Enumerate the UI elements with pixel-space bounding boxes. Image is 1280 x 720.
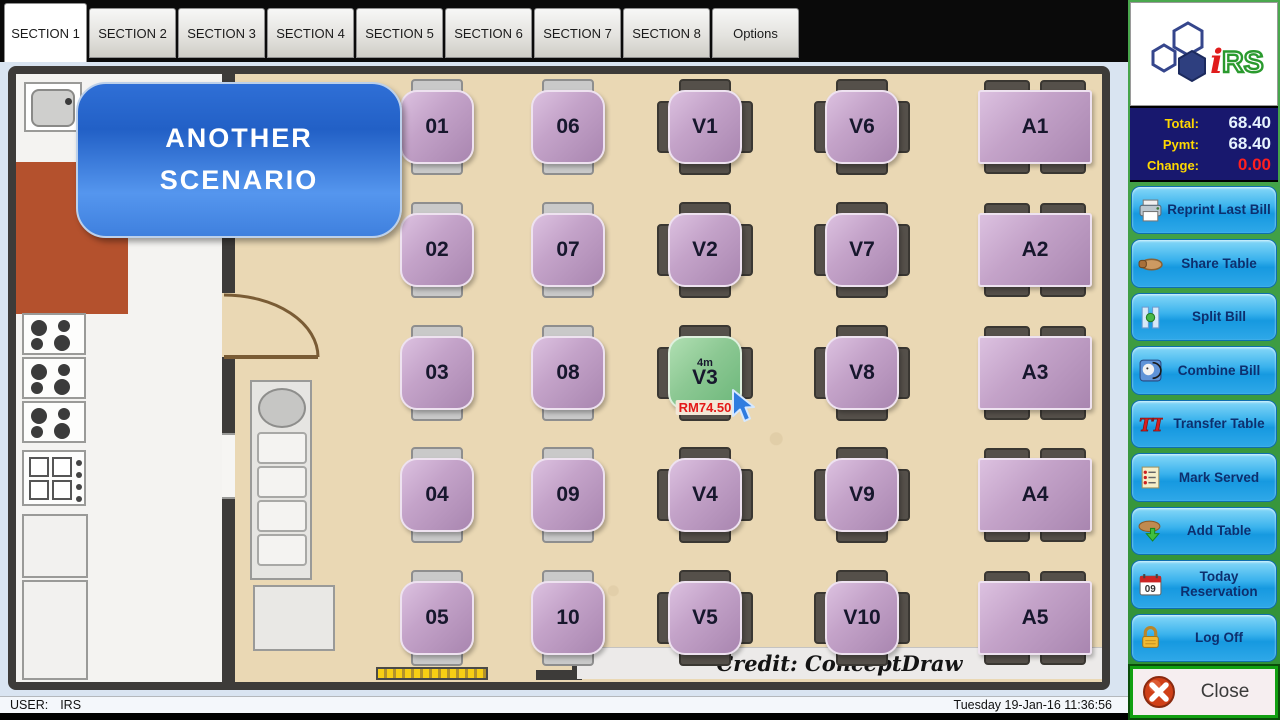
add-table-button[interactable]: Add Table <box>1131 507 1277 555</box>
share-table-button[interactable]: Share Table <box>1131 239 1277 287</box>
table-label: V6 <box>849 115 875 139</box>
table-04[interactable]: 04 <box>400 458 474 532</box>
checklist-icon <box>1137 464 1163 490</box>
table-surface: 05 <box>400 581 474 655</box>
table-surface: V2 <box>668 213 742 287</box>
table-A5[interactable]: A5 <box>978 581 1092 655</box>
table-surface: V4 <box>668 458 742 532</box>
scenario-callout: ANOTHER SCENARIO <box>76 82 402 238</box>
table-V5[interactable]: V5 <box>668 581 742 655</box>
table-V4[interactable]: V4 <box>668 458 742 532</box>
table-label: A1 <box>1022 115 1049 139</box>
table-label: 07 <box>556 238 579 262</box>
share-table-label: Share Table <box>1167 256 1271 272</box>
fridge <box>22 580 88 680</box>
pymt-label: Pymt: <box>1137 137 1199 152</box>
log-off-button[interactable]: Log Off <box>1131 614 1277 662</box>
door-opening <box>222 433 235 499</box>
stove <box>22 401 86 443</box>
table-V1[interactable]: V1 <box>668 90 742 164</box>
stove <box>22 313 86 355</box>
table-03[interactable]: 03 <box>400 336 474 410</box>
table-label: V8 <box>849 361 875 385</box>
irs-logo: i RS <box>1130 2 1278 106</box>
table-label: A4 <box>1022 483 1049 507</box>
split-bill-button[interactable]: Split Bill <box>1131 293 1277 341</box>
table-surface: 08 <box>531 336 605 410</box>
tab-section-1[interactable]: SECTION 1 <box>4 3 87 62</box>
app-window: SECTION 1SECTION 2SECTION 3SECTION 4SECT… <box>0 0 1280 720</box>
table-V10[interactable]: V10 <box>825 581 899 655</box>
table-surface: 03 <box>400 336 474 410</box>
add-table-label: Add Table <box>1167 523 1271 539</box>
tab-section-3[interactable]: SECTION 3 <box>178 8 265 58</box>
table-V9[interactable]: V9 <box>825 458 899 532</box>
sidebar: i RS Total: 68.40 Pymt: 68.40 Change: 0.… <box>1128 0 1280 720</box>
table-label: 02 <box>425 238 448 262</box>
reprint-last-bill-label: Reprint Last Bill <box>1167 202 1271 218</box>
user-label: USER: <box>10 698 48 712</box>
table-07[interactable]: 07 <box>531 213 605 287</box>
tab-section-4[interactable]: SECTION 4 <box>267 8 354 58</box>
table-label: V1 <box>692 115 718 139</box>
combine-icon <box>1137 358 1163 384</box>
transfer-table-label: Transfer Table <box>1167 416 1271 432</box>
table-surface: A3 <box>978 336 1092 410</box>
table-label: 05 <box>425 606 448 630</box>
table-amount: RM74.50 <box>676 400 735 415</box>
table-label: V2 <box>692 238 718 262</box>
close-label: Close <box>1183 681 1267 703</box>
add-table-icon <box>1137 518 1163 544</box>
callout-line2: SCENARIO <box>160 160 319 202</box>
table-A2[interactable]: A2 <box>978 213 1092 287</box>
table-10[interactable]: 10 <box>531 581 605 655</box>
transfer-icon: TT <box>1137 411 1163 437</box>
table-surface: 04 <box>400 458 474 532</box>
table-label: V5 <box>692 606 718 630</box>
table-V7[interactable]: V7 <box>825 213 899 287</box>
total-value: 68.40 <box>1199 113 1271 133</box>
table-label: A5 <box>1022 606 1049 630</box>
table-09[interactable]: 09 <box>531 458 605 532</box>
service-counter <box>253 585 335 651</box>
user-value: IRS <box>60 698 81 712</box>
table-surface: V6 <box>825 90 899 164</box>
mark-served-button[interactable]: Mark Served <box>1131 453 1277 501</box>
counter-stove <box>22 450 86 506</box>
stove <box>22 357 86 399</box>
table-surface: V10 <box>825 581 899 655</box>
printer-icon <box>1137 197 1163 223</box>
lock-icon <box>1137 625 1163 651</box>
total-label: Total: <box>1137 116 1199 131</box>
table-label: A3 <box>1022 361 1049 385</box>
table-label: 04 <box>425 483 448 507</box>
table-surface: 02 <box>400 213 474 287</box>
floor-plan: 01020304050607080910V1V24mV3RM74.50V4V5V… <box>8 66 1110 690</box>
stairs-strip <box>376 667 488 680</box>
mark-served-label: Mark Served <box>1167 470 1271 486</box>
tab-options[interactable]: Options <box>712 8 799 58</box>
mouse-cursor <box>728 388 760 424</box>
table-label: 08 <box>556 361 579 385</box>
log-off-label: Log Off <box>1167 630 1271 646</box>
table-V2[interactable]: V2 <box>668 213 742 287</box>
table-label: 03 <box>425 361 448 385</box>
table-surface: V7 <box>825 213 899 287</box>
tab-section-8[interactable]: SECTION 8 <box>623 8 710 58</box>
table-surface: V9 <box>825 458 899 532</box>
door-arc <box>220 291 324 365</box>
table-surface: V5 <box>668 581 742 655</box>
pymt-value: 68.40 <box>1199 134 1271 154</box>
bottom-strip <box>0 713 1128 720</box>
table-surface: 09 <box>531 458 605 532</box>
combine-bill-label: Combine Bill <box>1167 363 1271 379</box>
sink <box>24 82 82 132</box>
hand-icon <box>1137 251 1163 277</box>
svg-text:i: i <box>1210 42 1223 82</box>
table-surface: A4 <box>978 458 1092 532</box>
combine-bill-button[interactable]: Combine Bill <box>1131 346 1277 394</box>
content-area: 01020304050607080910V1V24mV3RM74.50V4V5V… <box>0 62 1128 696</box>
split-bill-label: Split Bill <box>1167 309 1271 325</box>
table-surface: A5 <box>978 581 1092 655</box>
tab-section-6[interactable]: SECTION 6 <box>445 8 532 58</box>
table-label: 10 <box>556 606 579 630</box>
table-label: V9 <box>849 483 875 507</box>
change-label: Change: <box>1137 158 1199 173</box>
table-A1[interactable]: A1 <box>978 90 1092 164</box>
tab-section-2[interactable]: SECTION 2 <box>89 8 176 58</box>
table-surface: 10 <box>531 581 605 655</box>
close-button[interactable]: Close <box>1130 666 1278 718</box>
totals-panel: Total: 68.40 Pymt: 68.40 Change: 0.00 <box>1130 106 1278 182</box>
table-A3[interactable]: A3 <box>978 336 1092 410</box>
table-label: V3 <box>692 366 718 390</box>
table-surface: V1 <box>668 90 742 164</box>
table-surface: 07 <box>531 213 605 287</box>
transfer-table-button[interactable]: TTTransfer Table <box>1131 400 1277 448</box>
reprint-last-bill-button[interactable]: Reprint Last Bill <box>1131 186 1277 234</box>
table-surface: 06 <box>531 90 605 164</box>
status-bar: USER: IRS Tuesday 19-Jan-16 11:36:56 <box>0 696 1128 713</box>
table-label: V4 <box>692 483 718 507</box>
svg-text:RS: RS <box>1222 46 1264 79</box>
table-label: 09 <box>556 483 579 507</box>
fridge <box>22 514 88 578</box>
table-surface: A2 <box>978 213 1092 287</box>
section-tabbar: SECTION 1SECTION 2SECTION 3SECTION 4SECT… <box>0 0 1128 62</box>
today-reservation-button[interactable]: 09Today Reservation <box>1131 560 1277 608</box>
table-08[interactable]: 08 <box>531 336 605 410</box>
service-station <box>250 380 312 580</box>
split-icon <box>1137 304 1163 330</box>
tab-section-5[interactable]: SECTION 5 <box>356 8 443 58</box>
callout-line1: ANOTHER <box>165 118 313 160</box>
close-icon <box>1141 679 1177 705</box>
table-label: A2 <box>1022 238 1049 262</box>
svg-text:TT: TT <box>1139 415 1163 436</box>
table-02[interactable]: 02 <box>400 213 474 287</box>
table-label: V7 <box>849 238 875 262</box>
change-value: 0.00 <box>1199 155 1271 175</box>
table-label: V10 <box>843 606 880 630</box>
table-01[interactable]: 01 <box>400 90 474 164</box>
table-surface: V8 <box>825 336 899 410</box>
calendar-icon: 09 <box>1137 571 1163 597</box>
sidebar-buttons: Reprint Last BillShare TableSplit BillCo… <box>1130 182 1278 662</box>
table-06[interactable]: 06 <box>531 90 605 164</box>
table-surface: 01 <box>400 90 474 164</box>
table-label: 06 <box>556 115 579 139</box>
tab-section-7[interactable]: SECTION 7 <box>534 8 621 58</box>
today-reservation-label: Today Reservation <box>1167 569 1271 600</box>
table-V6[interactable]: V6 <box>825 90 899 164</box>
irs-logo-graphic: i RS <box>1140 15 1268 93</box>
table-surface: A1 <box>978 90 1092 164</box>
datetime: Tuesday 19-Jan-16 11:36:56 <box>954 698 1118 712</box>
svg-text:09: 09 <box>1144 584 1155 595</box>
table-A4[interactable]: A4 <box>978 458 1092 532</box>
table-V8[interactable]: V8 <box>825 336 899 410</box>
table-05[interactable]: 05 <box>400 581 474 655</box>
table-label: 01 <box>425 115 448 139</box>
